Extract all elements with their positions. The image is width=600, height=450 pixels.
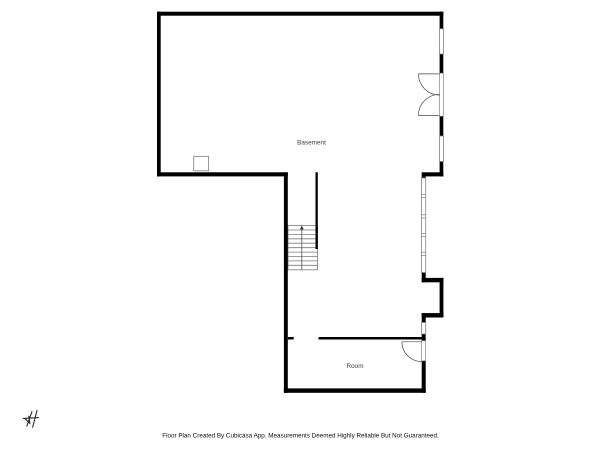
svg-text:Room: Room [346,363,363,370]
svg-text:Basement: Basement [297,140,326,147]
svg-text:Floor Plan Created By Cubicasa: Floor Plan Created By Cubicasa App. Meas… [162,432,439,439]
